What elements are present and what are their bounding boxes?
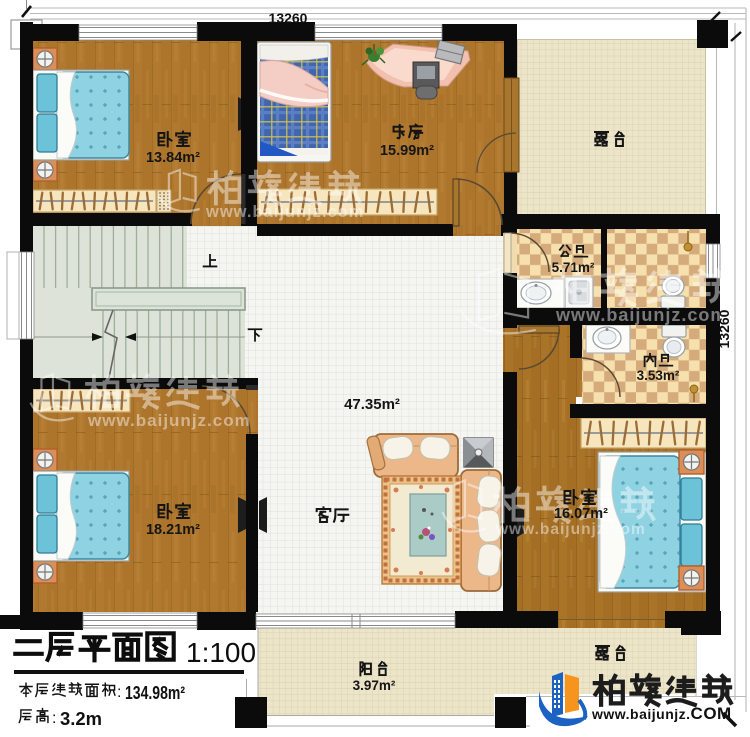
svg-text:134.98m²: 134.98m²: [125, 683, 185, 703]
svg-text:3.2m: 3.2m: [60, 709, 102, 729]
svg-text:www.baijunjz.com: www.baijunjz.com: [87, 411, 251, 430]
svg-text:13260: 13260: [716, 309, 732, 348]
svg-text:3.53m²: 3.53m²: [637, 368, 680, 383]
svg-text:5.71m²: 5.71m²: [552, 260, 595, 275]
svg-text:47.35m²: 47.35m²: [344, 396, 400, 413]
svg-text:3.97m²: 3.97m²: [353, 678, 396, 693]
svg-text::: :: [52, 710, 56, 727]
svg-text:16.07m²: 16.07m²: [554, 506, 608, 522]
svg-text:15.99m²: 15.99m²: [380, 143, 434, 159]
svg-text:www.baijunjz.COM: www.baijunjz.COM: [591, 704, 732, 723]
svg-text:www.baijunjz.com: www.baijunjz.com: [495, 521, 646, 538]
svg-text:1:100: 1:100: [186, 637, 256, 668]
svg-text:13.84m²: 13.84m²: [146, 150, 200, 166]
svg-text:www.baijunjz.com: www.baijunjz.com: [205, 203, 364, 221]
svg-text:18.21m²: 18.21m²: [146, 522, 200, 538]
svg-text:www.baijunjz.com: www.baijunjz.com: [555, 305, 727, 325]
svg-text::: :: [117, 684, 121, 701]
svg-text:13260: 13260: [269, 10, 308, 26]
